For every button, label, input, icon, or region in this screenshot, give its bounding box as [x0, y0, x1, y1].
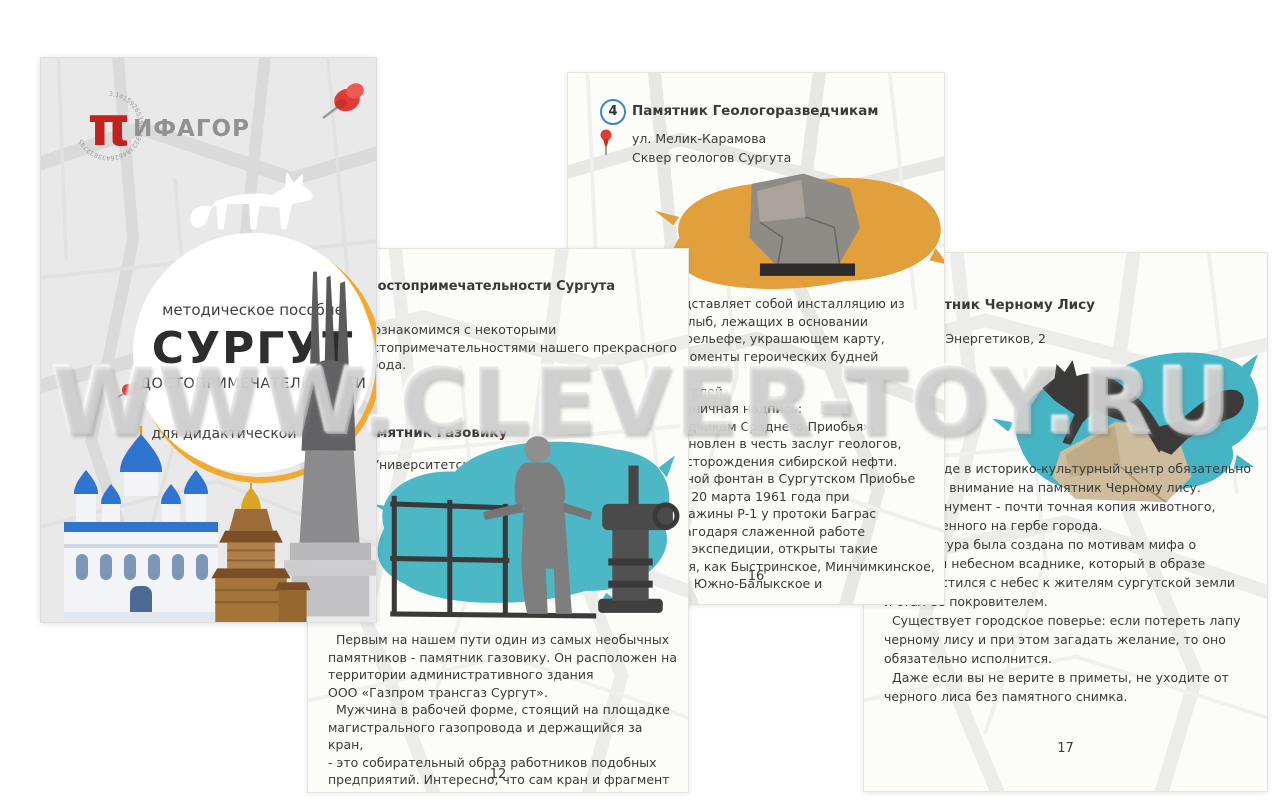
- body-text: Первым на нашем пути один из самых необы…: [328, 631, 680, 789]
- wooden-church-illustration: [191, 483, 311, 622]
- page-number: 17: [864, 741, 1267, 756]
- booklet-product-photo: 5 Памятник Черному Лису ул. Энергетиков,…: [0, 0, 1280, 804]
- number-badge: 4: [600, 99, 626, 125]
- watermark: WWW.CLEVER-TOY.RU: [52, 348, 1242, 456]
- cover-page: 3,1415926535897932384626433832795 π ИФАГ…: [40, 57, 377, 623]
- section-header: Достопримечательности Сургута: [366, 279, 615, 294]
- page-number: 12: [308, 767, 688, 782]
- brand-name: ИФАГОР: [133, 116, 250, 142]
- monument-address-line1: ул. Мелик-Карамова: [632, 129, 766, 148]
- pushpin-icon: [317, 74, 371, 128]
- pi-icon: π: [88, 95, 131, 158]
- location-pin-icon: [598, 129, 614, 157]
- fox-silhouette-icon: [181, 150, 331, 240]
- monument-title: Памятник Геологоразведчикам: [632, 103, 878, 119]
